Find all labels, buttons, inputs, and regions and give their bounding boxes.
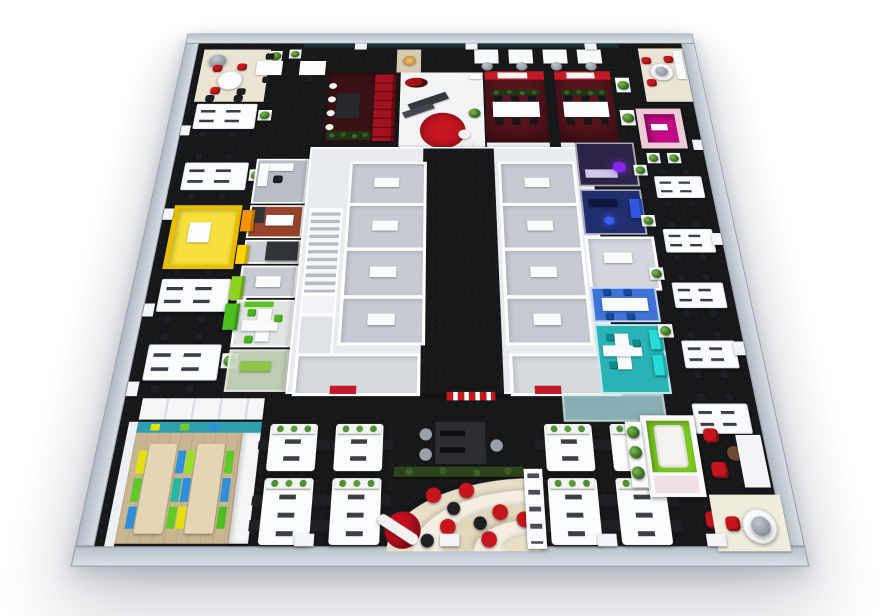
purple-room: [575, 143, 641, 187]
red-meeting-room-1: [484, 71, 550, 148]
desk-cluster: [647, 168, 713, 207]
core-room: [337, 296, 425, 345]
white-chair: [325, 124, 334, 130]
office-chair: [707, 309, 719, 318]
office-chair: [198, 131, 209, 138]
green-chair: [247, 309, 256, 317]
wall-screen: [566, 73, 595, 79]
conference-table: [601, 298, 648, 311]
render-canvas: [0, 0, 880, 616]
monitor-row: [283, 439, 301, 464]
white-table: [265, 215, 294, 226]
sphere-stool: [458, 130, 470, 139]
office-chair: [186, 193, 197, 201]
bench-desk: [547, 478, 603, 545]
desk-surface: [156, 279, 232, 312]
desk-planter: [549, 478, 595, 489]
green-chair: [274, 315, 283, 323]
bench-desk: [333, 424, 384, 471]
purple-lamp: [612, 162, 627, 173]
red-ottoman: [426, 487, 441, 503]
planter-box: [646, 153, 661, 163]
office-chair: [205, 95, 215, 102]
hedge-planter: [393, 467, 524, 477]
sage-lounge: [224, 349, 290, 392]
chair-row: [494, 96, 537, 102]
black-ottoman: [421, 534, 434, 548]
exit-sign: [329, 386, 356, 394]
office-chair: [718, 369, 731, 379]
exit-sign: [535, 386, 562, 394]
desk-surface: [654, 176, 706, 198]
plant: [660, 326, 672, 336]
desk-surface: [671, 282, 727, 308]
desk-surface: [691, 404, 753, 434]
office-chair: [273, 175, 283, 183]
office-chair: [194, 153, 205, 160]
black-ottoman: [473, 516, 487, 530]
green-chair: [243, 336, 253, 344]
office-nook: [251, 159, 310, 204]
desk-planter: [338, 424, 382, 434]
core-room: [502, 248, 589, 298]
plant: [626, 426, 640, 438]
office-chair: [262, 76, 272, 83]
lime-table: [240, 361, 272, 371]
chair-row: [256, 439, 269, 462]
office-chair: [159, 332, 171, 342]
cabinet-row: [139, 398, 265, 419]
conference-table: [563, 102, 610, 117]
office-chair: [306, 76, 315, 83]
chair-row: [535, 439, 547, 462]
planter-box: [667, 153, 682, 163]
core-room: [347, 162, 427, 205]
desk-cluster: [185, 95, 265, 138]
desk-planter: [266, 478, 312, 489]
chair-row: [495, 118, 539, 124]
office-chair: [196, 315, 208, 324]
breakroom-teal-wall: [136, 422, 262, 433]
black-ottoman: [447, 502, 460, 515]
manager-desk: [435, 422, 486, 464]
pod-mat: [653, 476, 700, 494]
blue-meeting-room: [590, 287, 661, 322]
office-chair: [690, 220, 701, 228]
dark-table: [335, 94, 360, 119]
plant: [643, 217, 654, 225]
white-desk: [257, 163, 270, 186]
breakroom: [104, 422, 262, 547]
gray-chair: [419, 428, 432, 440]
chair-row: [564, 96, 606, 102]
planter-box: [657, 324, 674, 337]
white-chair: [329, 83, 337, 89]
office-chair: [681, 168, 692, 176]
core-room: [344, 204, 426, 250]
t-table: [241, 320, 278, 331]
wall-pillar: [597, 534, 618, 547]
plant: [621, 113, 634, 122]
pod-table: [651, 124, 669, 130]
wall-deco-tile: [209, 424, 219, 431]
room-table: [603, 253, 633, 263]
blue-chair: [605, 313, 614, 321]
logo-wall-art: [405, 78, 428, 88]
duo-table: [299, 61, 327, 75]
monitor-row: [346, 495, 364, 538]
teal-chair: [632, 340, 642, 348]
core-room: [500, 204, 584, 250]
office-chair: [308, 53, 317, 59]
office-chair: [711, 330, 723, 340]
console-table: [470, 74, 482, 79]
red-meeting-room-2: [554, 71, 621, 148]
desk-surface: [180, 163, 249, 191]
desk-cluster: [133, 332, 230, 394]
wall-pillar: [440, 534, 459, 547]
wall-pillar: [355, 43, 367, 49]
office-chair: [691, 369, 704, 379]
white-chair: [328, 96, 337, 102]
round-table: [216, 71, 244, 89]
desk-surface: [663, 229, 717, 253]
white-room-pair: [585, 236, 663, 290]
office-chair: [265, 53, 274, 59]
office-chair: [236, 88, 246, 95]
dark-cabinet: [265, 241, 299, 260]
core-corridor: [420, 148, 504, 394]
lavender-desk: [585, 169, 618, 177]
white-table: [255, 276, 281, 287]
monitor-row: [565, 495, 585, 538]
desk-planter: [272, 424, 317, 434]
monitor-row: [350, 439, 367, 464]
shelf-items: [527, 473, 543, 543]
desk-surface: [192, 104, 258, 129]
plant: [469, 109, 481, 118]
office-chair: [234, 95, 244, 102]
chair-row: [382, 439, 393, 462]
office-chair: [666, 220, 677, 228]
staircase: [302, 208, 343, 294]
conference-table: [493, 102, 541, 117]
office-chair: [686, 199, 697, 207]
wall-screen: [497, 73, 527, 79]
wall-deco-tile: [180, 424, 190, 431]
office-chair: [657, 168, 668, 176]
cabinet-room: [242, 240, 301, 264]
red-chair: [237, 64, 248, 71]
office-chair: [227, 131, 237, 138]
core-room: [498, 162, 579, 205]
office-chair: [149, 384, 162, 394]
desk-surface: [681, 340, 740, 368]
plant: [648, 154, 659, 161]
monitor-row: [276, 495, 296, 538]
hazard-strip: [447, 392, 496, 400]
reception-lobby: [398, 73, 485, 149]
blue-chair: [602, 289, 611, 296]
blue-chair: [623, 289, 632, 296]
office-chair: [697, 253, 709, 262]
office-chair: [685, 330, 697, 340]
pendant-lamp: [516, 62, 528, 70]
office-chair: [224, 153, 235, 160]
room-table: [372, 221, 398, 231]
room-table: [374, 178, 399, 187]
room-table: [367, 314, 395, 325]
desk-cluster: [664, 273, 736, 319]
plant: [635, 166, 646, 174]
red-armchair: [710, 462, 729, 478]
planter-box: [257, 110, 272, 120]
chair-row: [318, 495, 332, 535]
cyan-locker: [652, 355, 668, 375]
office-chair: [723, 392, 736, 403]
planter-box: [289, 50, 302, 59]
red-chair: [663, 56, 674, 63]
pendant-lamp: [550, 62, 562, 70]
red-chair: [724, 516, 741, 531]
red-chair: [646, 79, 657, 86]
pendant-lamp: [585, 62, 597, 70]
wall-pillar: [294, 534, 314, 547]
office-chair: [162, 315, 174, 324]
pod-table: [186, 222, 211, 242]
corner-lounge-top-left: [194, 50, 271, 102]
blue-lamp: [604, 217, 615, 225]
office-chair: [695, 392, 708, 403]
desk-cluster: [172, 153, 256, 201]
red-armchair: [702, 428, 719, 442]
planter-box: [641, 215, 656, 226]
red-ottoman: [492, 504, 508, 520]
room-table: [527, 221, 553, 231]
pendant-lamp: [481, 62, 493, 70]
wall-top: [185, 34, 694, 44]
white-chair: [326, 110, 335, 116]
red-ottoman: [481, 531, 497, 547]
red-shelf-booth: [372, 74, 397, 141]
blue-chair: [626, 313, 635, 321]
core-block: [285, 147, 619, 394]
chair-row: [601, 439, 614, 462]
room-table: [533, 314, 561, 325]
office-chair: [184, 384, 197, 394]
room-table: [524, 178, 549, 187]
office-chair: [193, 332, 205, 342]
teal-chair: [609, 361, 619, 369]
office-floor-plan: [70, 34, 809, 567]
planter-box: [633, 165, 648, 176]
bench-desk: [328, 478, 382, 545]
monitor-row: [561, 439, 579, 464]
navy-room: [580, 189, 648, 234]
glass-partition-top: [304, 43, 619, 47]
planter-box: [619, 110, 636, 125]
monitor-row: [634, 495, 655, 538]
office-chair: [217, 193, 228, 201]
wall-pillar: [584, 43, 597, 49]
wall-deco-tile: [150, 424, 160, 431]
desk-planter: [334, 478, 380, 489]
plant: [617, 81, 630, 90]
duo-table: [255, 61, 283, 75]
plant: [651, 269, 663, 278]
warm-nook: [397, 50, 422, 73]
wall-pillar: [692, 140, 703, 150]
plant: [629, 446, 643, 458]
red-lounge-nook: [322, 73, 396, 143]
red-ottoman: [459, 483, 475, 498]
red-ottoman: [440, 519, 456, 535]
desk-planter: [546, 424, 591, 434]
wall-pillar: [465, 43, 477, 49]
room-table: [370, 266, 397, 277]
office-chair: [662, 199, 673, 207]
planter-box: [615, 78, 631, 93]
floor-lamp-glow: [403, 56, 416, 66]
bench-desk: [266, 424, 319, 471]
green-wall-art: [244, 302, 274, 308]
red-chair: [210, 87, 221, 94]
chair-row: [323, 439, 335, 462]
red-chair: [641, 57, 652, 64]
office-chair: [681, 309, 693, 318]
core-room: [341, 248, 426, 298]
plant: [291, 51, 300, 57]
planter-strip: [326, 131, 371, 140]
office-chair: [672, 253, 684, 262]
office-chair: [700, 273, 712, 282]
magenta-pod: [635, 109, 688, 149]
wall-pillar: [706, 534, 728, 547]
plant: [259, 111, 270, 119]
core-room: [504, 296, 594, 345]
plant: [631, 467, 645, 480]
gray-chair: [490, 439, 503, 451]
room-table: [530, 266, 557, 277]
teal-chair: [606, 334, 615, 342]
stair-landing: [300, 294, 337, 314]
desk-surface: [142, 344, 222, 380]
chair-row: [566, 118, 608, 124]
gray-chair: [419, 448, 432, 460]
gray-room: [237, 266, 298, 298]
dark-desk: [588, 199, 618, 207]
yellow-pod: [162, 205, 243, 269]
office-chair: [675, 273, 687, 282]
plant: [669, 154, 680, 161]
red-chair: [212, 65, 223, 72]
planter-box: [649, 267, 665, 279]
bench-desk: [544, 424, 596, 471]
